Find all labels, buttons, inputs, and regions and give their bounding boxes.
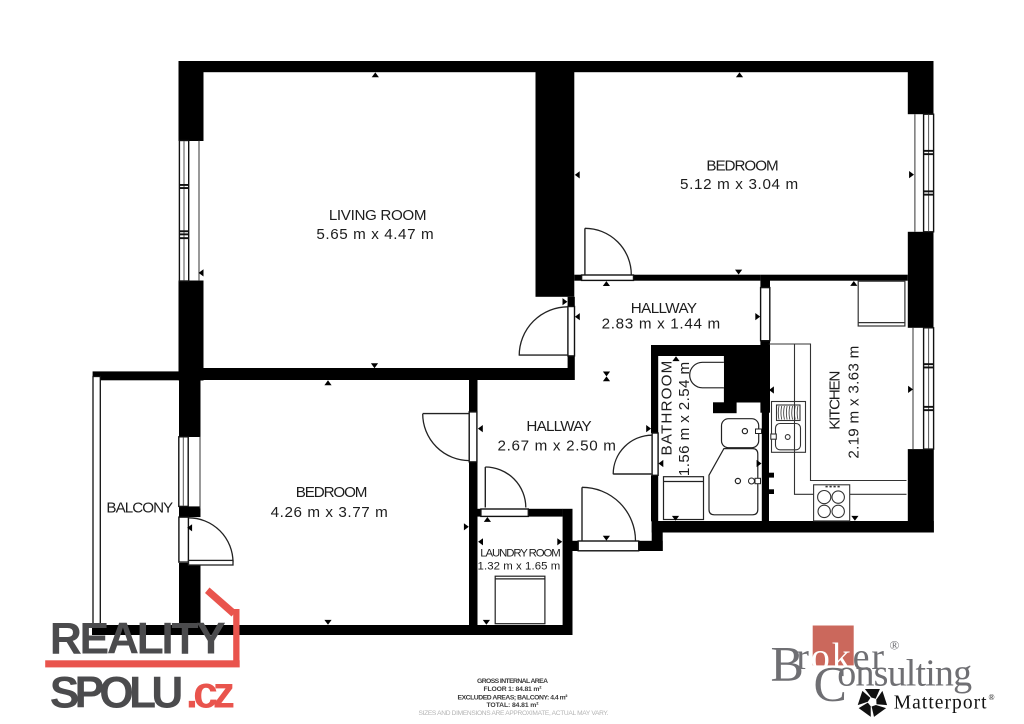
svg-text:4.26 m x 3.77 m: 4.26 m x 3.77 m	[271, 504, 388, 521]
svg-text:SPOLU: SPOLU	[50, 668, 184, 717]
svg-text:FLOOR 1: 84.81 m²: FLOOR 1: 84.81 m²	[484, 686, 543, 693]
svg-text:1.56 m x 2.54 m: 1.56 m x 2.54 m	[676, 362, 693, 476]
svg-text:BALCONY: BALCONY	[106, 499, 173, 516]
svg-text:LIVING ROOM: LIVING ROOM	[329, 207, 427, 224]
svg-text:HALLWAY: HALLWAY	[526, 418, 591, 435]
svg-text:TOTAL: 84.81 m²: TOTAL: 84.81 m²	[487, 702, 540, 709]
svg-text:1.32 m x 1.65 m: 1.32 m x 1.65 m	[478, 561, 561, 573]
svg-text:®: ®	[890, 638, 900, 653]
svg-text:BATHROOM: BATHROOM	[658, 361, 675, 456]
svg-text:onsulting: onsulting	[837, 652, 972, 694]
svg-text:EXCLUDED AREAS; BALCONY: 4.4 m: EXCLUDED AREAS; BALCONY: 4.4 m²	[458, 694, 569, 701]
svg-text:2.67 m x 2.50 m: 2.67 m x 2.50 m	[497, 438, 616, 455]
svg-text:5.12 m x 3.04 m: 5.12 m x 3.04 m	[680, 176, 798, 193]
svg-text:REALITY: REALITY	[50, 614, 226, 663]
svg-text:2.19 m x 3.63 m: 2.19 m x 3.63 m	[846, 346, 863, 459]
svg-text:2.83 m x 1.44 m: 2.83 m x 1.44 m	[602, 316, 721, 333]
svg-text:5.65 m x 4.47 m: 5.65 m x 4.47 m	[316, 226, 433, 243]
svg-text:LAUNDRY ROOM: LAUNDRY ROOM	[480, 548, 561, 560]
svg-text:SIZES AND DIMENSIONS ARE APPRO: SIZES AND DIMENSIONS ARE APPROXIMATE, AC…	[419, 710, 609, 717]
svg-text:KITCHEN: KITCHEN	[827, 371, 844, 430]
svg-text:BEDROOM: BEDROOM	[706, 157, 778, 174]
svg-text:GROSS INTERNAL AREA: GROSS INTERNAL AREA	[477, 678, 548, 685]
svg-text:.cz: .cz	[186, 668, 235, 717]
svg-text:Matterport: Matterport	[894, 693, 987, 714]
svg-text:BEDROOM: BEDROOM	[296, 484, 368, 501]
svg-text:HALLWAY: HALLWAY	[631, 300, 697, 317]
svg-text:®: ®	[989, 693, 995, 702]
